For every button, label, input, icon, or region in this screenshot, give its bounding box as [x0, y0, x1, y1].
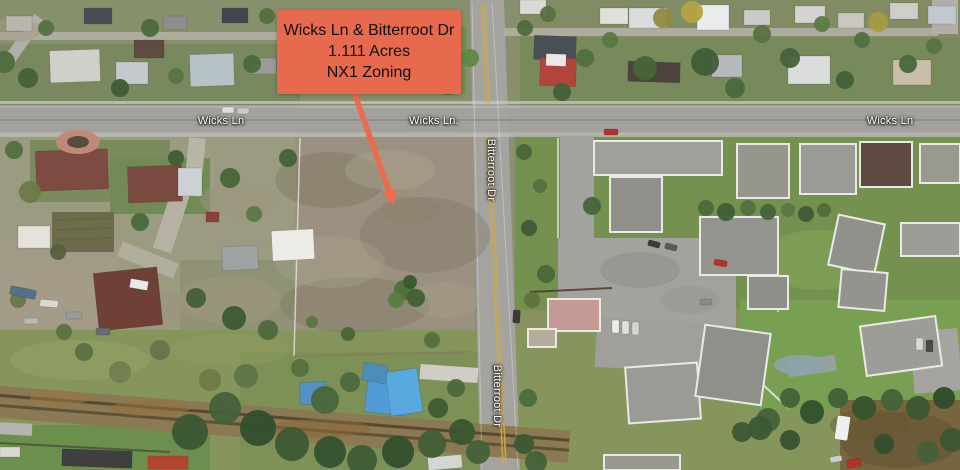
building: [163, 16, 187, 30]
tree-icon: [306, 316, 318, 328]
annotation-line-acreage: 1.111 Acres: [328, 42, 410, 62]
building: [127, 165, 182, 203]
building: [901, 223, 960, 256]
vehicle: [513, 310, 521, 323]
building: [206, 212, 219, 222]
building: [594, 141, 722, 175]
tree-icon: [382, 436, 414, 468]
terrain-patch: [345, 150, 435, 190]
building: [134, 40, 164, 58]
building: [838, 13, 864, 28]
tree-icon: [5, 141, 23, 159]
terrain-patch: [600, 252, 680, 288]
tree-icon: [111, 79, 129, 97]
tree-icon: [19, 181, 41, 203]
tree-icon: [917, 441, 939, 463]
tree-icon: [874, 434, 894, 454]
street-label-wicks-ln-center: Wicks Ln.: [409, 115, 459, 127]
tree-icon: [311, 386, 339, 414]
building: [62, 449, 133, 468]
tree-icon: [258, 320, 278, 340]
tree-icon: [388, 292, 404, 308]
terrain-patch: [774, 355, 826, 375]
tree-icon: [653, 8, 673, 28]
tree-icon: [56, 324, 72, 340]
tree-icon: [38, 20, 54, 36]
tree-icon: [209, 392, 241, 424]
tree-icon: [698, 200, 714, 216]
vehicle: [222, 107, 234, 113]
tree-icon: [243, 55, 261, 73]
vehicle: [66, 312, 82, 319]
tree-icon: [748, 416, 772, 440]
tree-icon: [540, 6, 556, 22]
tree-icon: [246, 206, 262, 222]
terrain-patch: [110, 400, 190, 416]
tree-icon: [817, 203, 831, 217]
tree-icon: [449, 419, 475, 445]
map-viewport[interactable]: Wicks Ln Wicks Ln. Wicks Ln Bitterroot D…: [0, 0, 960, 470]
building: [35, 149, 108, 191]
building: [148, 456, 188, 469]
building: [222, 8, 248, 23]
building: [221, 245, 258, 271]
surface: [560, 136, 594, 242]
tree-icon: [240, 410, 276, 446]
tree-icon: [109, 361, 131, 383]
tree-icon: [576, 49, 594, 67]
tree-icon: [780, 388, 800, 408]
building: [828, 215, 885, 275]
tree-icon: [428, 398, 448, 418]
street-label-bitterroot-dr-upper: Bitterroot Dr: [485, 139, 497, 202]
tree-icon: [222, 306, 246, 330]
tree-icon: [933, 387, 955, 409]
tree-icon: [340, 372, 360, 392]
tree-icon: [753, 25, 771, 43]
building: [600, 8, 628, 24]
vehicle: [40, 299, 59, 308]
tree-icon: [881, 389, 903, 411]
street-label-bitterroot-dr-lower: Bitterroot Dr: [491, 365, 503, 428]
tree-icon: [50, 244, 66, 260]
tree-icon: [521, 220, 537, 236]
building: [610, 177, 662, 232]
building: [700, 217, 778, 275]
tree-icon: [220, 168, 240, 188]
building: [920, 144, 960, 183]
building: [189, 53, 234, 87]
building: [890, 3, 918, 19]
tree-icon: [279, 149, 297, 167]
tree-icon: [780, 430, 800, 450]
tree-icon: [424, 332, 440, 348]
tree-icon: [602, 32, 618, 48]
building: [860, 142, 912, 187]
street-label-wicks-ln-left: Wicks Ln: [198, 115, 245, 127]
tree-icon: [553, 83, 571, 101]
vehicle: [926, 340, 933, 352]
tree-icon: [725, 78, 745, 98]
tree-icon: [781, 203, 795, 217]
tree-icon: [131, 213, 149, 231]
building: [385, 368, 423, 416]
surface: [0, 101, 960, 104]
vehicle: [237, 108, 249, 114]
tree-icon: [141, 19, 159, 37]
tree-icon: [168, 68, 184, 84]
building: [604, 455, 680, 470]
building: [928, 6, 956, 24]
surface: [0, 134, 960, 137]
tree-icon: [852, 396, 876, 420]
tree-icon: [172, 414, 208, 450]
building: [744, 10, 770, 25]
tree-icon: [199, 369, 221, 391]
tree-icon: [524, 292, 540, 308]
vehicle: [96, 328, 110, 335]
terrain-patch: [380, 196, 440, 224]
tree-icon: [75, 343, 93, 361]
tree-icon: [514, 434, 534, 454]
tree-icon: [926, 38, 942, 54]
building: [800, 144, 856, 194]
building: [84, 8, 112, 24]
building: [6, 16, 32, 31]
tree-icon: [681, 1, 703, 23]
building: [838, 269, 887, 311]
tree-icon: [18, 68, 38, 88]
tree-icon: [517, 20, 533, 36]
building: [748, 276, 788, 309]
tree-icon: [691, 48, 719, 76]
tree-icon: [168, 150, 184, 166]
tree-icon: [854, 32, 870, 48]
vehicle: [612, 320, 619, 333]
tree-icon: [407, 289, 425, 307]
building: [49, 49, 100, 83]
tree-icon: [798, 206, 814, 222]
tree-icon: [418, 430, 446, 458]
vehicle: [700, 299, 712, 305]
street-label-wicks-ln-right: Wicks Ln: [867, 115, 914, 127]
tree-icon: [828, 388, 848, 408]
tree-icon: [760, 204, 776, 220]
tree-icon: [516, 144, 532, 160]
tree-icon: [291, 359, 309, 377]
building: [93, 267, 163, 331]
patio: [67, 136, 89, 148]
tree-icon: [906, 396, 930, 420]
vehicle: [604, 129, 618, 135]
tree-icon: [868, 12, 888, 32]
satellite-imagery: [0, 0, 960, 470]
building: [528, 329, 556, 347]
tree-icon: [314, 436, 346, 468]
annotation-line-streets: Wicks Ln & Bitterroot Dr: [284, 21, 455, 41]
building: [546, 54, 566, 67]
building: [695, 325, 770, 405]
tree-icon: [519, 389, 537, 407]
tree-icon: [150, 340, 170, 360]
annotation-line-zoning: NX1 Zoning: [327, 63, 412, 83]
tree-icon: [583, 197, 601, 215]
building: [625, 363, 701, 424]
building: [178, 168, 202, 196]
tree-icon: [740, 200, 756, 216]
building: [0, 447, 20, 457]
annotation-callout: Wicks Ln & Bitterroot Dr 1.111 Acres NX1…: [277, 10, 461, 94]
tree-icon: [186, 288, 206, 308]
tree-icon: [341, 327, 355, 341]
tree-icon: [447, 379, 465, 397]
tree-icon: [403, 275, 417, 289]
tree-icon: [836, 71, 854, 89]
tree-icon: [633, 56, 657, 80]
tree-icon: [800, 400, 824, 424]
vehicle: [632, 322, 639, 335]
building: [271, 229, 315, 261]
tree-icon: [275, 427, 309, 461]
tree-icon: [259, 8, 275, 24]
terrain-patch: [30, 391, 90, 405]
vehicle: [916, 338, 923, 350]
surface: [0, 422, 32, 436]
tree-icon: [466, 440, 490, 464]
tree-icon: [814, 16, 830, 32]
tree-icon: [780, 48, 800, 68]
building: [737, 144, 789, 198]
building: [548, 299, 600, 331]
tree-icon: [899, 55, 917, 73]
tree-icon: [234, 364, 258, 388]
tree-icon: [533, 179, 547, 193]
vehicle: [622, 321, 629, 334]
building: [18, 226, 50, 248]
tree-icon: [461, 49, 479, 67]
tree-icon: [537, 265, 555, 283]
vehicle: [24, 318, 38, 324]
building: [362, 362, 389, 384]
tree-icon: [717, 203, 735, 221]
